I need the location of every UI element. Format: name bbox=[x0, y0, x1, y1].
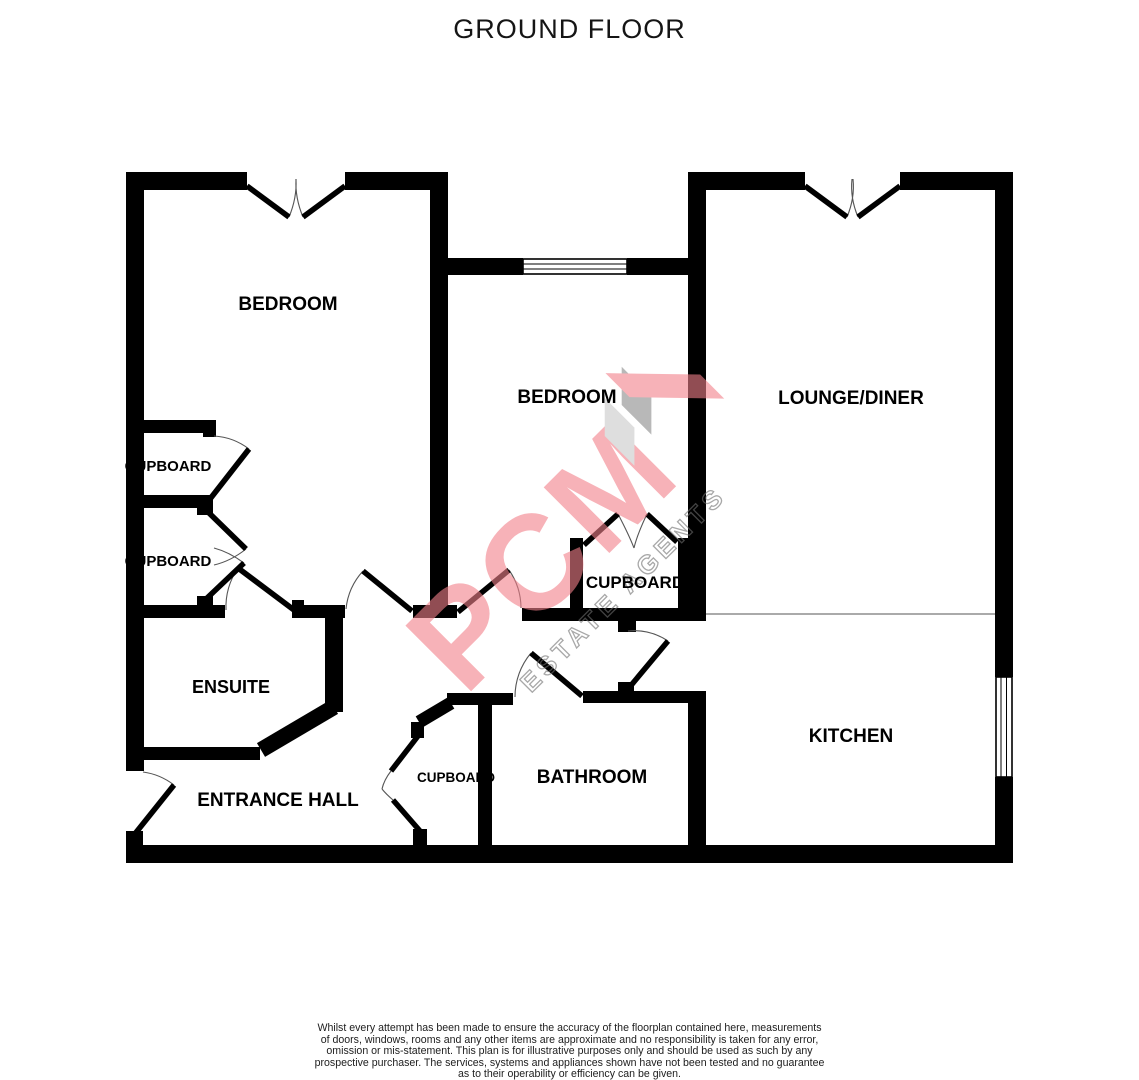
room-label-cupboard-hall: CUPBOARD bbox=[417, 770, 495, 785]
floorplan-drawing: PCM ESTATE AGENTS BEDROOM BEDROOM LOUNGE… bbox=[0, 0, 1139, 1080]
room-label-bedroom-middle: BEDROOM bbox=[517, 387, 616, 408]
room-label-bedroom-top-left: BEDROOM bbox=[238, 294, 337, 315]
french-door-arc bbox=[852, 179, 858, 217]
french-door-leaf-bedroom bbox=[303, 186, 345, 217]
ensuite-door-leaf bbox=[238, 568, 294, 610]
room-label-entrance-hall: ENTRANCE HALL bbox=[197, 790, 359, 811]
room-label-bathroom: BATHROOM bbox=[537, 767, 647, 788]
french-door-leaf-bedroom bbox=[247, 186, 289, 217]
kitchen-door-arc bbox=[628, 631, 668, 641]
cupboard-door-arc bbox=[382, 789, 393, 800]
hall-cupboard-door-leaf bbox=[393, 800, 420, 831]
room-label-cupboard-left-lower: CUPBOARD bbox=[125, 553, 212, 570]
floorplan-page: GROUND FLOOR bbox=[0, 0, 1139, 1080]
french-door-arc bbox=[289, 179, 296, 217]
french-door-leaf-lounge bbox=[858, 186, 900, 217]
room-label-cupboard-left-upper: CUPBOARD bbox=[125, 458, 212, 475]
front-door-arc bbox=[143, 772, 174, 785]
bedroom-door-arc bbox=[346, 571, 363, 609]
chamfer-walls bbox=[261, 703, 451, 750]
hall-cupboard-door-leaf bbox=[391, 736, 418, 771]
cupboard-lower-door-leaf bbox=[207, 511, 246, 549]
cupboard-door-arc bbox=[382, 771, 391, 789]
cupboard-door-arc bbox=[214, 436, 249, 449]
disclaimer-line: as to their operability or efficiency ca… bbox=[0, 1069, 1139, 1080]
room-label-ensuite: ENSUITE bbox=[192, 677, 270, 697]
room-label-kitchen: KITCHEN bbox=[809, 726, 893, 747]
disclaimer-line: Whilst every attempt has been made to en… bbox=[0, 1023, 1139, 1035]
french-door-arc bbox=[296, 179, 303, 217]
window-bedroom-middle bbox=[523, 259, 627, 274]
window-kitchen bbox=[996, 677, 1012, 777]
room-label-lounge-diner: LOUNGE/DINER bbox=[778, 388, 924, 409]
kitchen-door-leaf bbox=[628, 641, 668, 689]
front-door-leaf bbox=[134, 785, 174, 835]
room-label-cupboard-middle: CUPBOARD bbox=[586, 573, 684, 592]
cupboard-upper-door-leaf bbox=[210, 449, 249, 499]
disclaimer: Whilst every attempt has been made to en… bbox=[0, 1023, 1139, 1080]
cupboard-door-arc bbox=[214, 548, 244, 563]
french-door-leaf-lounge bbox=[805, 186, 847, 217]
